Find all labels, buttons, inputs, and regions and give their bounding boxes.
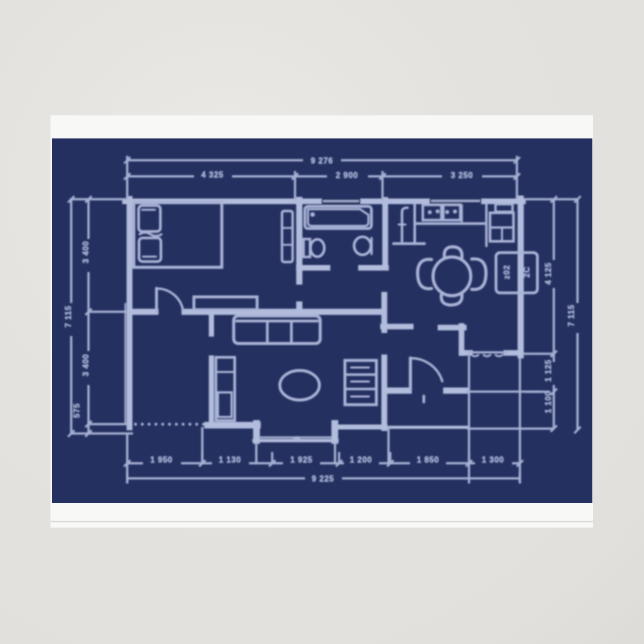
svg-text:1 130: 1 130	[219, 456, 242, 465]
svg-text:1 100: 1 100	[544, 391, 553, 414]
svg-text:4 325: 4 325	[201, 171, 224, 180]
svg-text:2C: 2C	[523, 266, 532, 277]
svg-text:575: 575	[73, 403, 82, 418]
svg-text:1 300: 1 300	[482, 456, 505, 465]
svg-text:2 900: 2 900	[336, 171, 359, 180]
svg-text:3 250: 3 250	[451, 171, 474, 180]
svg-text:4 125: 4 125	[544, 262, 553, 285]
svg-text:1 850: 1 850	[417, 456, 440, 465]
svg-text:7 115: 7 115	[64, 305, 73, 327]
svg-text:1 925: 1 925	[290, 456, 313, 465]
svg-text:9 225: 9 225	[312, 474, 335, 483]
svg-text:1 125: 1 125	[544, 359, 553, 382]
svg-text:1 950: 1 950	[150, 456, 173, 465]
svg-text:z02: z02	[503, 265, 512, 279]
svg-text:1 200: 1 200	[350, 456, 373, 465]
svg-text:9 276: 9 276	[311, 156, 334, 165]
svg-text:7 115: 7 115	[567, 304, 576, 326]
svg-text:3 400: 3 400	[82, 241, 91, 264]
svg-text:3 400: 3 400	[82, 354, 91, 377]
